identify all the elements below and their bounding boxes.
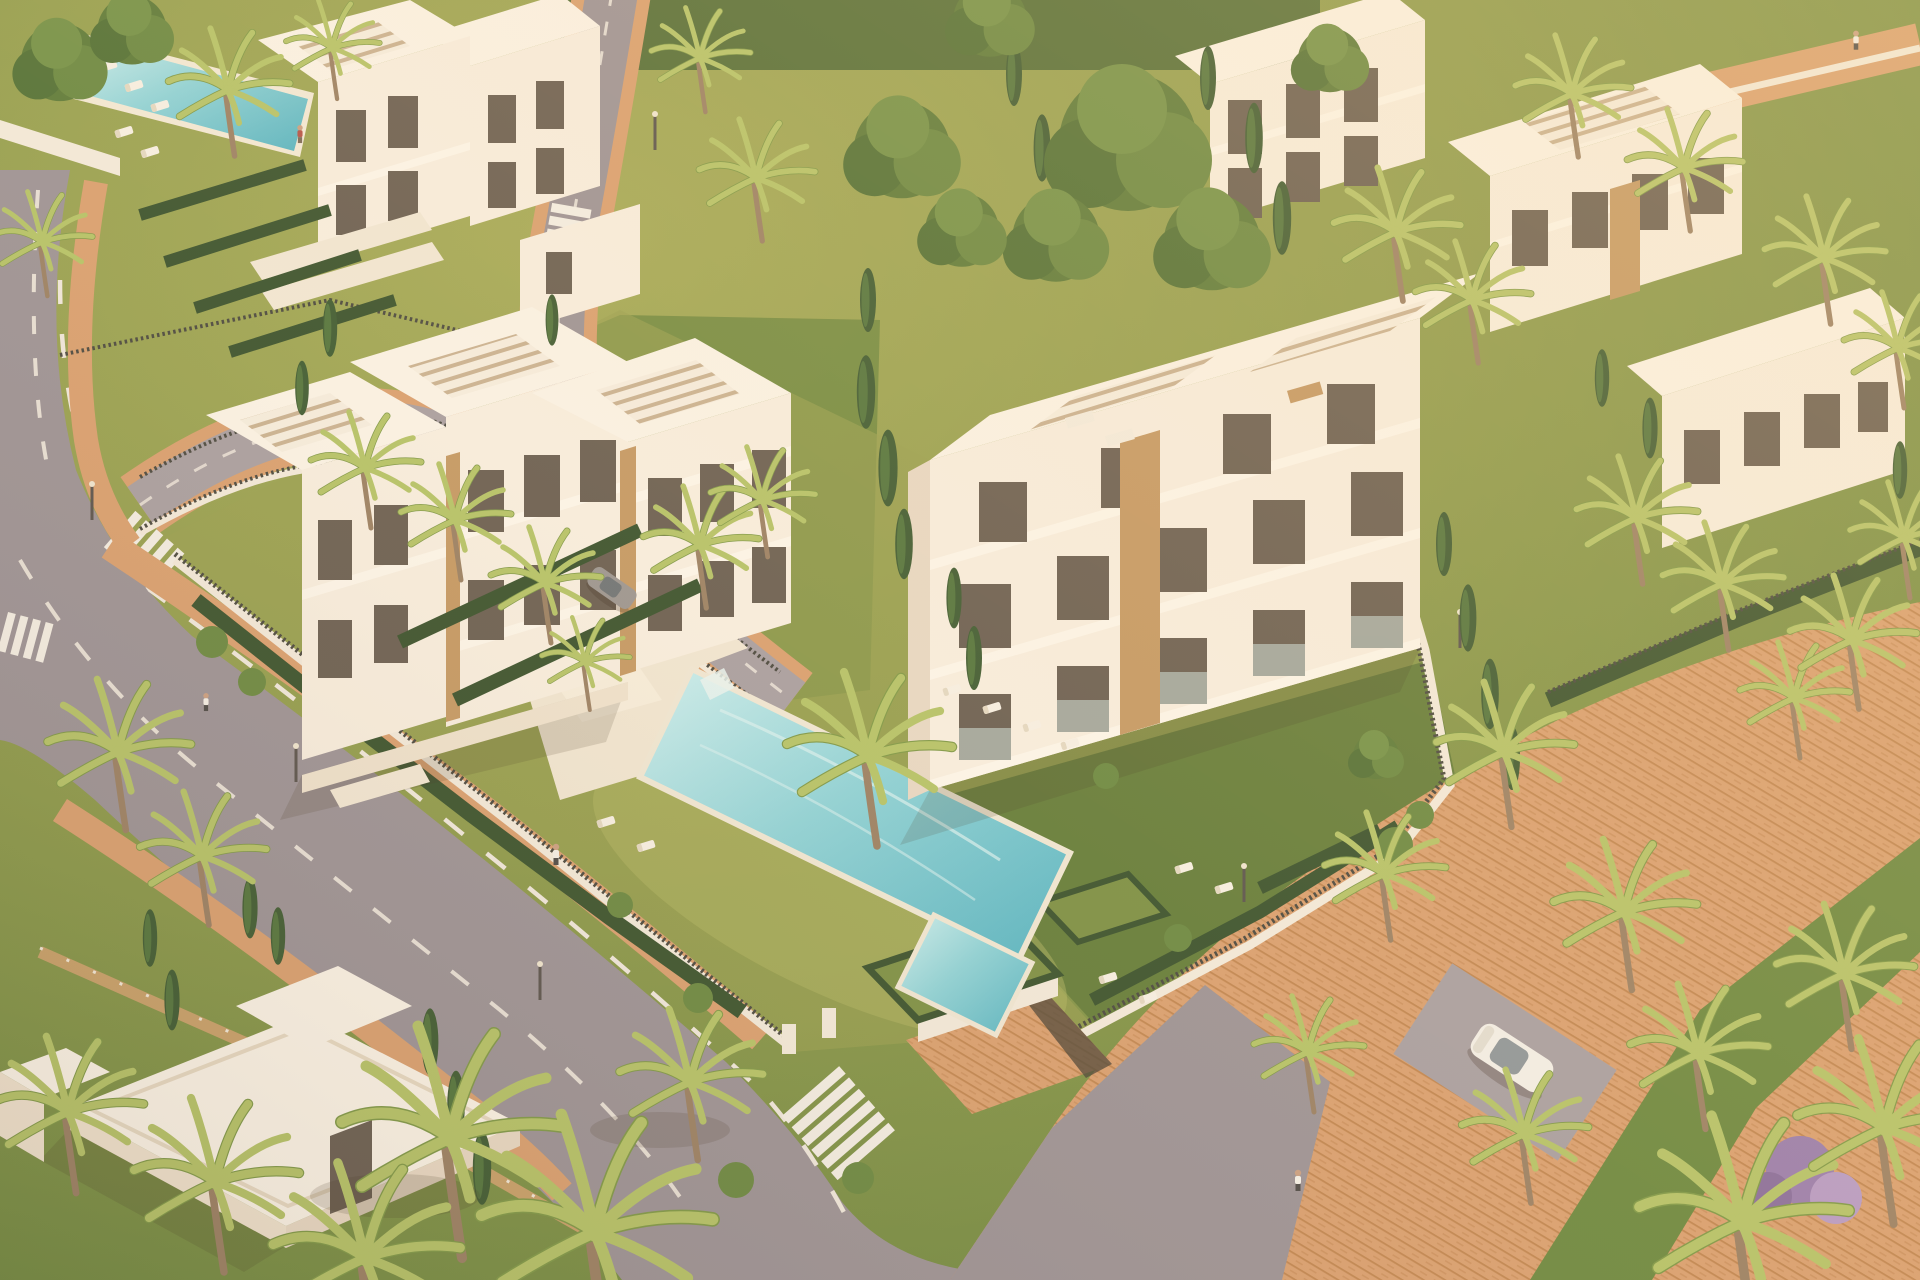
golden-hour-overlay — [0, 0, 1920, 1280]
aerial-render-image — [0, 0, 1920, 1280]
render-canvas — [0, 0, 1920, 1280]
